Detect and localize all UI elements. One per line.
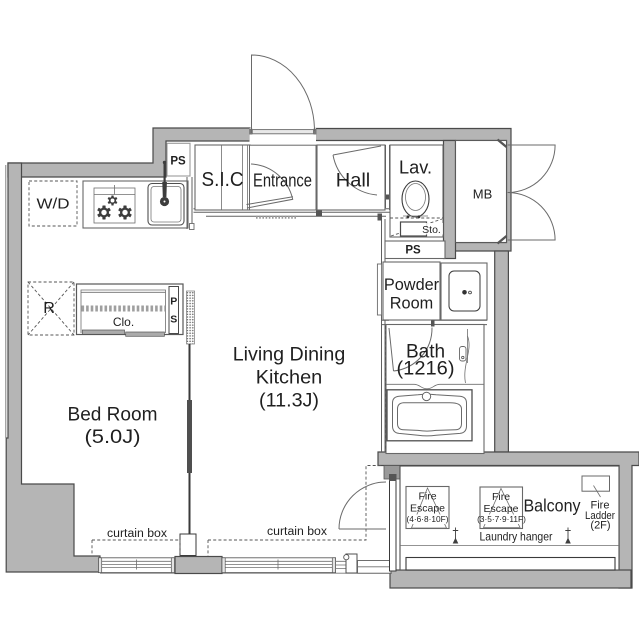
svg-text:Kitchen: Kitchen bbox=[256, 368, 323, 389]
svg-text:R: R bbox=[43, 300, 55, 317]
svg-text:Sto.: Sto. bbox=[422, 224, 441, 236]
svg-text:(1216): (1216) bbox=[397, 359, 455, 380]
svg-text:(11.3J): (11.3J) bbox=[259, 391, 319, 412]
svg-text:Living Dining: Living Dining bbox=[233, 345, 346, 366]
svg-text:MB: MB bbox=[473, 187, 493, 202]
svg-text:Laundry hanger: Laundry hanger bbox=[480, 530, 553, 544]
svg-text:Escape: Escape bbox=[410, 503, 445, 515]
svg-text:P: P bbox=[170, 296, 177, 308]
svg-text:Hall: Hall bbox=[336, 171, 371, 192]
svg-text:curtain box: curtain box bbox=[267, 526, 327, 538]
svg-text:Clo.: Clo. bbox=[113, 315, 134, 329]
svg-text:curtain box: curtain box bbox=[107, 528, 167, 540]
svg-text:PS: PS bbox=[405, 245, 421, 257]
svg-text:(5.0J): (5.0J) bbox=[85, 427, 141, 448]
svg-text:(3·5·7·9·11F): (3·5·7·9·11F) bbox=[477, 514, 526, 524]
svg-text:Fire: Fire bbox=[418, 491, 436, 503]
svg-text:Room: Room bbox=[390, 295, 433, 313]
svg-text:Fire: Fire bbox=[492, 491, 510, 503]
svg-text:(4·6·8·10F): (4·6·8·10F) bbox=[407, 514, 449, 524]
svg-text:Powder: Powder bbox=[384, 276, 440, 294]
svg-text:PS: PS bbox=[170, 156, 186, 168]
svg-text:W/D: W/D bbox=[37, 197, 70, 213]
svg-text:Balcony: Balcony bbox=[524, 496, 581, 516]
svg-text:Entrance: Entrance bbox=[253, 170, 312, 191]
svg-text:S.I.C: S.I.C bbox=[202, 169, 244, 191]
svg-text:S: S bbox=[170, 314, 177, 326]
svg-text:(2F): (2F) bbox=[590, 520, 610, 532]
svg-text:Lav.: Lav. bbox=[399, 157, 432, 178]
svg-text:Bed Room: Bed Room bbox=[68, 405, 158, 426]
